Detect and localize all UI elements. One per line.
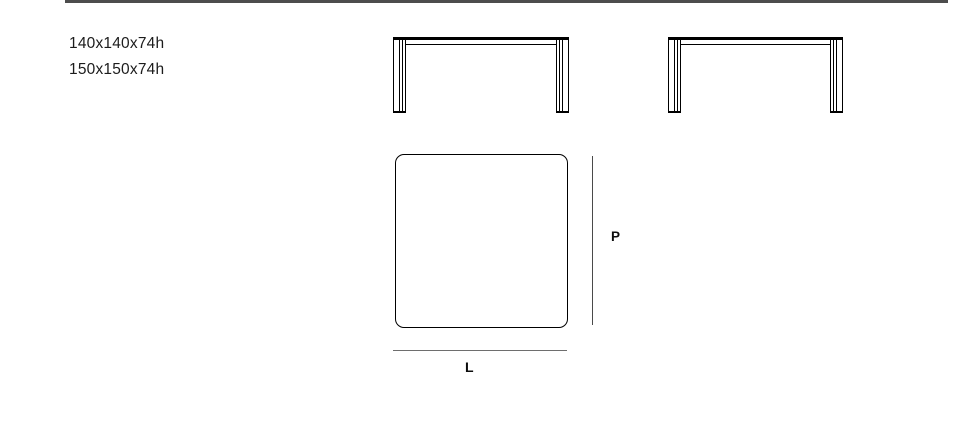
table-leg-right-icon: [830, 37, 843, 113]
size-label: 150x150x74h: [69, 57, 164, 83]
tabletop-edge-line: [668, 37, 843, 40]
leg-inner-wall-line: [674, 38, 675, 111]
leg-inner-wall-line: [833, 38, 834, 111]
depth-dimension-label: P: [611, 229, 620, 244]
leg-inner-wall-line: [399, 38, 400, 111]
length-dimension-line: [393, 350, 567, 351]
leg-inner-wall-line: [402, 38, 403, 111]
length-dimension-label: L: [465, 359, 474, 375]
depth-dimension-line: [592, 156, 593, 325]
tabletop-underside-line: [680, 44, 831, 45]
size-label-list: 140x140x74h 150x150x74h: [69, 31, 164, 83]
table-leg-right-icon: [556, 37, 569, 113]
tabletop-underside-line: [405, 44, 557, 45]
top-divider-rule: [65, 0, 948, 3]
tabletop-edge-line: [393, 37, 569, 40]
table-front-view-1-icon: [393, 37, 569, 113]
size-label: 140x140x74h: [69, 31, 164, 57]
leg-inner-wall-line: [562, 38, 563, 111]
table-front-view-2-icon: [668, 37, 843, 113]
table-leg-left-icon: [393, 37, 406, 113]
spec-sheet: 140x140x74h 150x150x74h P L: [0, 0, 966, 423]
leg-inner-wall-line: [677, 38, 678, 111]
leg-inner-wall-line: [559, 38, 560, 111]
table-leg-left-icon: [668, 37, 681, 113]
tabletop-top-view-icon: [395, 154, 568, 328]
leg-inner-wall-line: [836, 38, 837, 111]
